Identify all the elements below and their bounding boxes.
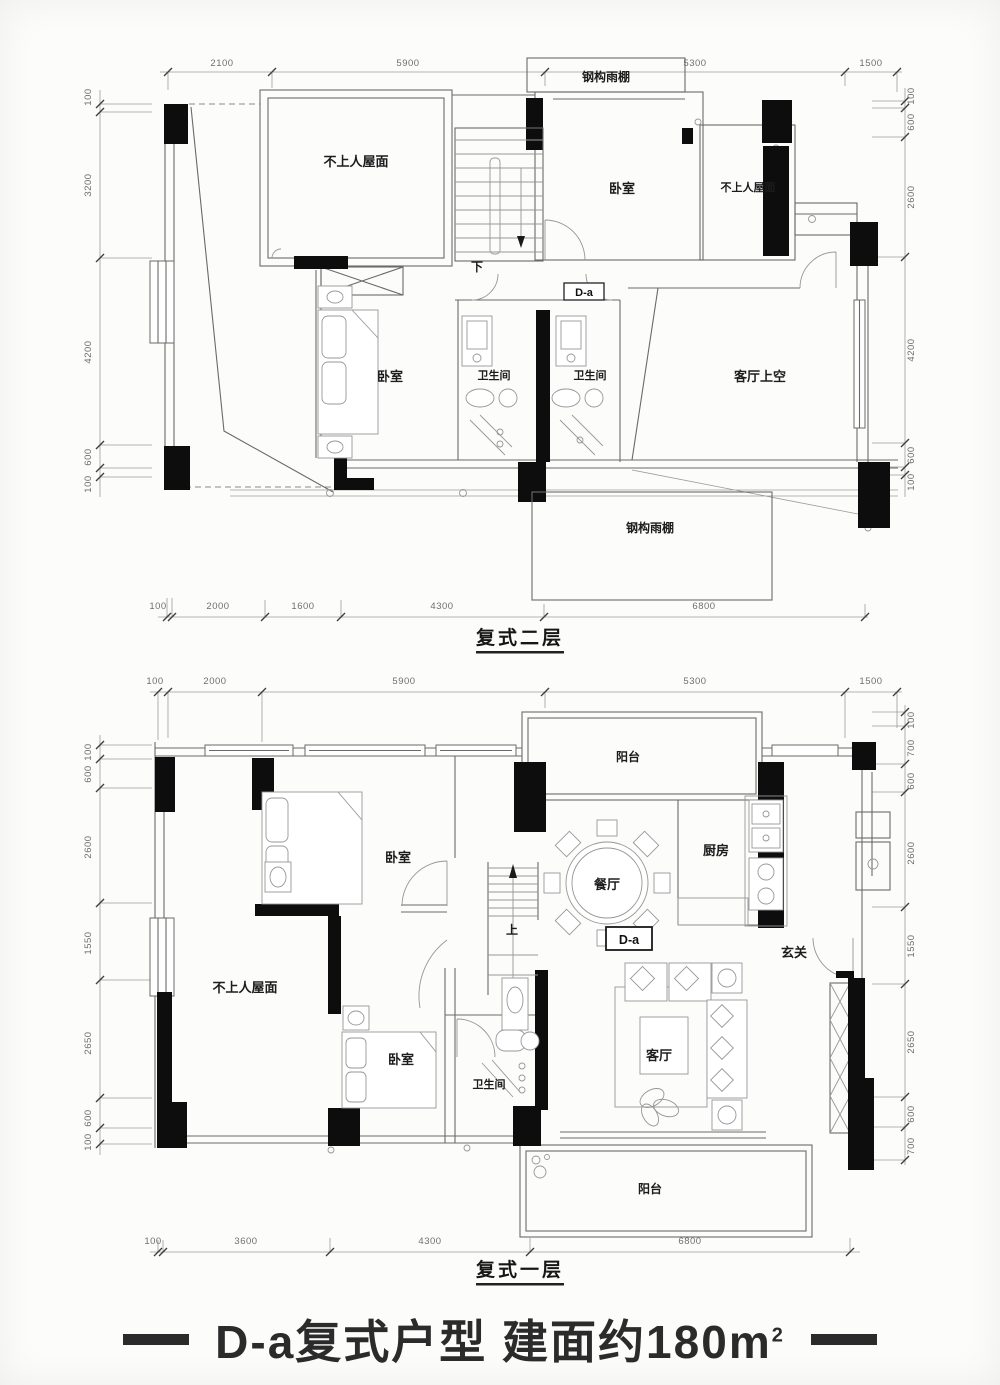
dim-label: 5900 bbox=[392, 676, 415, 687]
dim-label: 100 bbox=[83, 475, 94, 492]
room-label-bedroom-top: 卧室 bbox=[385, 850, 411, 865]
room-label-canopy-top: 钢构雨棚 bbox=[582, 69, 630, 84]
double-bed bbox=[318, 286, 378, 458]
dim-label: 700 bbox=[906, 1137, 917, 1154]
room-label-canopy-bottom: 钢构雨棚 bbox=[626, 520, 674, 535]
floorplan-page: 2100 5900 5300 1500 100 3200 4200 600 10… bbox=[0, 0, 1000, 1385]
toilet bbox=[462, 316, 492, 366]
unit-tag: D-a bbox=[564, 283, 604, 300]
first-floor-plan: 100 2000 5900 5300 1500 100 600 2600 155… bbox=[83, 676, 917, 1286]
dim-chain-left: 100 600 2600 1550 2650 600 100 bbox=[83, 735, 152, 1155]
dim-label: 700 bbox=[906, 739, 917, 756]
dim-label: 1600 bbox=[291, 601, 314, 612]
dim-label: 100 bbox=[83, 88, 94, 105]
room-label-balcony-bottom: 阳台 bbox=[638, 1181, 662, 1196]
room-label-dining: 餐厅 bbox=[593, 877, 620, 892]
canopy-outline bbox=[532, 492, 772, 600]
dim-label: 600 bbox=[83, 1109, 94, 1126]
footer-dash-left bbox=[123, 1334, 189, 1345]
dim-label: 100 bbox=[906, 473, 917, 490]
stair-direction-label: 上 bbox=[506, 922, 518, 937]
dim-label: 4200 bbox=[906, 338, 917, 361]
unit-symbol: m bbox=[729, 1316, 772, 1368]
dim-label: 600 bbox=[906, 446, 917, 463]
room-label-foyer: 玄关 bbox=[781, 945, 807, 960]
dim-label: 2600 bbox=[906, 185, 917, 208]
plan-title-second-floor: 复式二层 bbox=[475, 626, 564, 649]
dim-label: 100 bbox=[906, 87, 917, 104]
unit-tag-label: D-a bbox=[575, 287, 594, 299]
title-underline bbox=[476, 1283, 564, 1286]
dim-label: 1550 bbox=[906, 934, 917, 957]
dim-label: 3600 bbox=[234, 1236, 257, 1247]
toilet bbox=[496, 1030, 539, 1051]
dim-label: 2100 bbox=[210, 58, 233, 69]
dim-label: 4300 bbox=[418, 1236, 441, 1247]
room-label-bedroom-top: 卧室 bbox=[609, 181, 635, 196]
dim-chain-bottom: 100 2000 1600 4300 6800 bbox=[149, 598, 869, 621]
structural-walls bbox=[164, 98, 890, 528]
room-label-bath-left: 卫生间 bbox=[478, 368, 511, 382]
toilet bbox=[556, 316, 586, 366]
dim-label: 4200 bbox=[83, 340, 94, 363]
dim-label: 600 bbox=[906, 113, 917, 130]
dim-label: 2650 bbox=[83, 1031, 94, 1054]
unit-tag: D-a bbox=[606, 927, 652, 950]
dim-label: 100 bbox=[906, 711, 917, 728]
second-floor-plan: 2100 5900 5300 1500 100 3200 4200 600 10… bbox=[83, 58, 917, 654]
dim-chain-right: 100 700 600 2600 1550 2650 600 700 bbox=[872, 705, 917, 1165]
room-label-bath: 卫生间 bbox=[473, 1077, 506, 1091]
sink bbox=[466, 389, 603, 407]
dim-label: 1500 bbox=[859, 676, 882, 687]
dim-label: 600 bbox=[83, 448, 94, 465]
dim-label: 100 bbox=[149, 601, 166, 612]
room-label-living-void: 客厅上空 bbox=[734, 369, 786, 384]
dim-label: 5300 bbox=[683, 676, 706, 687]
unit-tag-label: D-a bbox=[619, 933, 640, 947]
dim-label: 5900 bbox=[396, 58, 419, 69]
dim-label: 1550 bbox=[83, 931, 94, 954]
sink bbox=[502, 978, 528, 1030]
plan-title-first-floor: 复式一层 bbox=[475, 1258, 564, 1281]
room-label-bath-right: 卫生间 bbox=[574, 368, 607, 382]
page-footer: D-a复式户型 建面约180m2 bbox=[0, 1296, 1000, 1382]
footer-dash-right bbox=[811, 1334, 877, 1345]
sofa-set bbox=[615, 963, 747, 1130]
dim-chain-top: 2100 5900 5300 1500 bbox=[160, 58, 902, 92]
kitchen-counter bbox=[678, 796, 787, 926]
room-label-balcony-top: 阳台 bbox=[616, 749, 640, 764]
dim-label: 2000 bbox=[203, 676, 226, 687]
dim-label: 100 bbox=[146, 676, 163, 687]
room-label-roof-left: 不上人屋面 bbox=[323, 154, 388, 169]
room-label-kitchen: 厨房 bbox=[703, 843, 729, 858]
room-label-living: 客厅 bbox=[646, 1048, 672, 1063]
room-label-roof-left: 不上人屋面 bbox=[212, 980, 277, 995]
unit-superscript: 2 bbox=[772, 1325, 785, 1347]
dim-label: 2000 bbox=[206, 601, 229, 612]
room-label-bedroom-mid: 卧室 bbox=[377, 369, 403, 384]
page-title-text: D-a复式户型 建面约180 bbox=[215, 1316, 729, 1368]
dim-label: 5300 bbox=[683, 58, 706, 69]
stair-direction-label: 下 bbox=[471, 260, 483, 274]
dim-label: 600 bbox=[83, 765, 94, 782]
dim-label: 2650 bbox=[906, 1030, 917, 1053]
dim-label: 2600 bbox=[906, 841, 917, 864]
dim-label: 600 bbox=[906, 1105, 917, 1122]
dim-chain-right: 100 600 2600 4200 600 100 bbox=[872, 87, 917, 497]
floorplan-canvas: 2100 5900 5300 1500 100 3200 4200 600 10… bbox=[0, 0, 1000, 1296]
dim-label: 3200 bbox=[83, 173, 94, 196]
dim-label: 6800 bbox=[692, 601, 715, 612]
title-underline bbox=[476, 651, 564, 654]
dim-label: 2600 bbox=[83, 835, 94, 858]
page-title: D-a复式户型 建面约180m2 bbox=[215, 1306, 785, 1372]
dim-label: 100 bbox=[144, 1236, 161, 1247]
dim-chain-bottom: 100 3600 4300 6800 bbox=[144, 1236, 860, 1256]
dim-label: 1500 bbox=[859, 58, 882, 69]
dim-label: 4300 bbox=[430, 601, 453, 612]
double-bed bbox=[262, 792, 362, 904]
dim-chain-left: 100 3200 4200 600 100 bbox=[83, 88, 152, 497]
dim-label: 100 bbox=[83, 743, 94, 760]
room-label-roof-right: 不上人屋面 bbox=[721, 180, 776, 194]
dim-chain-top: 100 2000 5900 5300 1500 bbox=[146, 676, 902, 742]
dim-label: 100 bbox=[83, 1133, 94, 1150]
dim-label: 6800 bbox=[678, 1236, 701, 1247]
dim-label: 600 bbox=[906, 772, 917, 789]
room-label-bedroom-bottom: 卧室 bbox=[388, 1052, 414, 1067]
